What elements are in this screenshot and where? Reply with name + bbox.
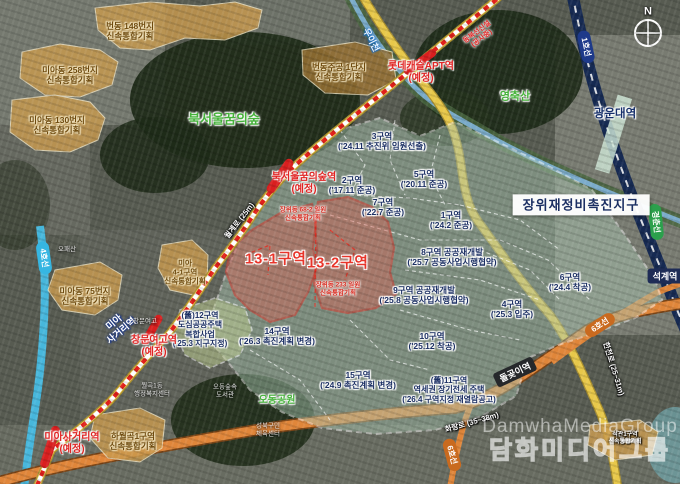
map-base-layers — [0, 0, 680, 484]
satellite-map: 번동 148번지 신속통합기획 미아동 258번지 신속통합기획 미아동 130… — [0, 0, 680, 484]
compass-icon — [635, 20, 661, 46]
station-seokgye-badge: 석계역 — [648, 269, 680, 284]
